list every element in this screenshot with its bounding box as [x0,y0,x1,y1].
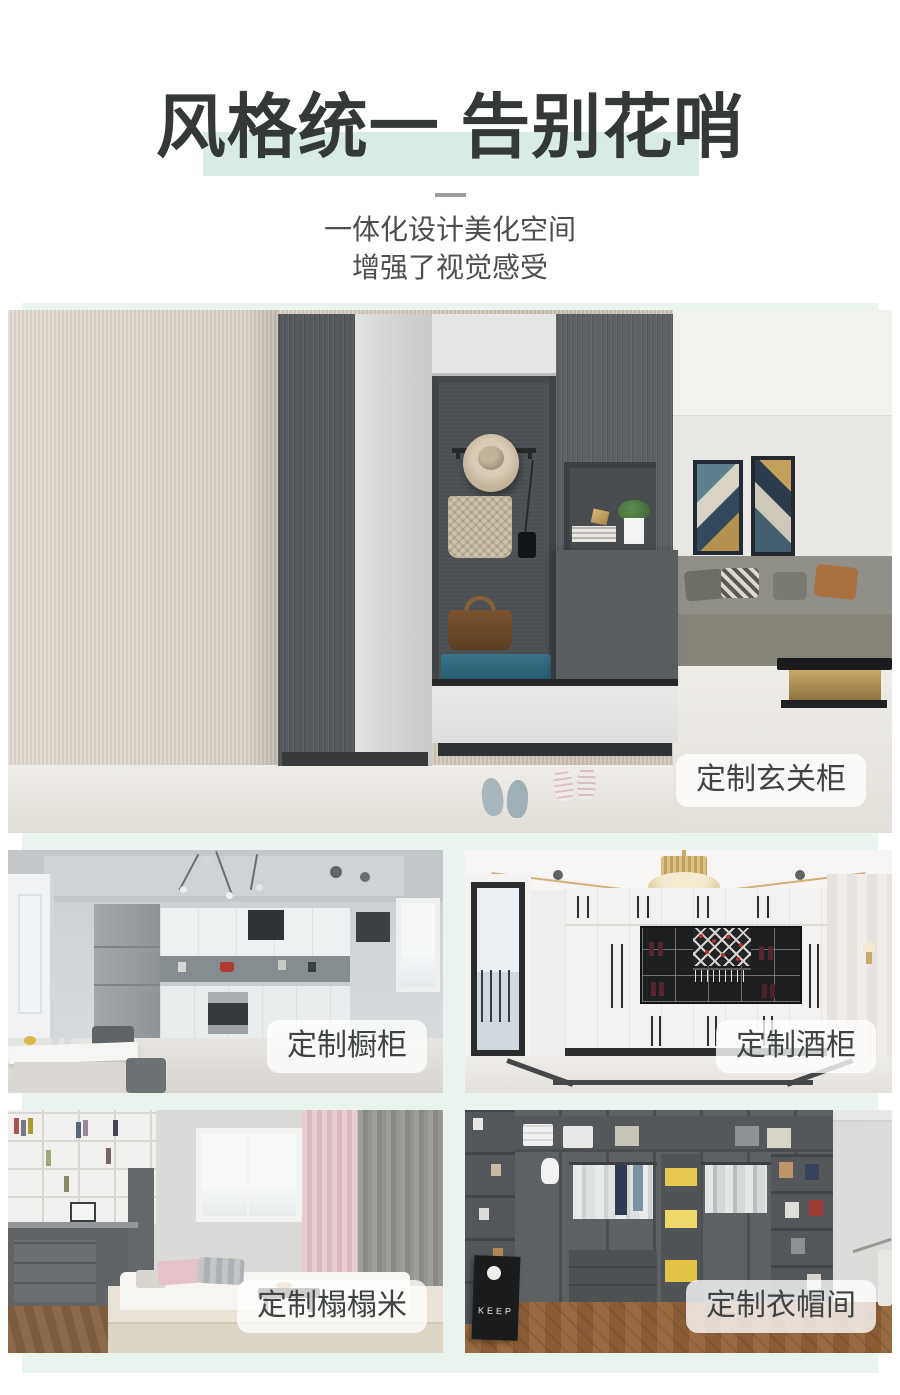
poster-text: KEEP [475,1305,517,1316]
hanging-garment [878,1250,892,1306]
wardrobe-light-panel [355,314,432,766]
floor-inlay-line [553,1080,813,1085]
window-mullion [247,1134,249,1216]
wardrobe-top-shelf [515,1116,833,1152]
window [196,1128,302,1222]
binoculars-decor [518,532,536,558]
flower-decor [24,1036,36,1045]
hanging-clothes [705,1165,767,1213]
built-in-oven [208,992,248,1034]
hero-photo-entryway-cabinet: 定制玄关柜 [8,310,892,833]
wardrobe-dark-panel [278,314,355,766]
pink-curtain [302,1110,360,1288]
bench-cushion [441,654,551,682]
header-section: 风格统一 告别花哨 一体化设计美化空间 增强了视觉感受 [0,0,900,300]
door-handles-right [809,944,811,1008]
slipper [576,766,596,801]
chandelier-bulbs [180,886,187,893]
subtitle-line-1: 一体化设计美化空间 [0,213,900,247]
poster-moon-graphic [487,1266,501,1280]
shelf-items [473,1118,483,1130]
bench-plinth [438,743,672,756]
tall-fridge-unit [94,904,160,1038]
gray-curtain [358,1110,443,1298]
tile-label-wine: 定制酒柜 [716,1020,876,1073]
folded-linens [523,1124,553,1146]
planter-pot [624,518,644,544]
cabinet-shadow [246,310,278,765]
living-room-ceiling [673,310,892,416]
books-decor [572,526,616,542]
balcony-railing [481,970,517,1022]
book-spines [14,1118,19,1134]
woven-bag-decor [448,496,512,558]
range-hood [248,910,284,940]
dining-table-base [14,1062,124,1093]
door-handles-left [611,944,613,1008]
wall-shelf [356,912,390,942]
tile-label-kitchen: 定制橱柜 [267,1020,427,1073]
backsplash [160,956,350,982]
wardrobe-drawers [569,1250,657,1302]
wine-bottle-caps [699,934,703,938]
subtitle-line-2: 增强了视觉感受 [0,251,900,285]
bench-shadow-gap [432,679,678,686]
balcony-door-glass [471,882,525,1056]
yellow-storage-box [665,1168,697,1186]
sofa-pillow [721,568,759,598]
dining-chair [126,1058,166,1093]
desk-drawers [14,1240,96,1302]
door-panel-line [18,894,42,1014]
wall-art-frame [751,456,795,556]
pink-pillow [157,1258,203,1285]
wall-art-frame [693,460,743,555]
shelf-items [779,1162,793,1178]
blue-shirt [633,1165,643,1211]
wine-bottles [649,942,654,956]
ceiling-spotlight [795,870,805,880]
counter-items [178,962,186,972]
yellow-storage-box [665,1260,697,1282]
ceiling-spotlight [360,872,370,882]
wall-sconce-base [866,952,872,964]
storage-boxes [615,1126,639,1146]
wall-sconce [863,942,875,952]
cabinet-plinth [282,752,428,766]
tile-label-cloakroom: 定制衣帽间 [686,1280,876,1333]
navy-shirt [615,1165,627,1215]
page-title: 风格统一 告别花哨 [0,92,900,162]
white-figurine [541,1158,559,1184]
title-divider [435,193,466,197]
ceiling-spotlight [330,866,342,878]
red-pot-decor [220,962,234,972]
promo-page: 风格统一 告别花哨 一体化设计美化空间 增强了视觉感受 [0,0,900,1395]
sofa-pillow [684,568,724,601]
showcase-section: 定制玄关柜 [0,300,900,1395]
coffee-table-base [789,670,881,700]
gold-ornament [591,508,610,525]
wine-bottles [759,946,764,960]
lower-cabinet-box [556,550,678,684]
yellow-storage-box [665,1210,697,1228]
sofa-pillow [773,572,807,600]
shoe-bench-drawer [432,686,678,743]
tile-photo-tatami: 定制榻榻米 [8,1110,443,1353]
sofa-pillow [813,564,858,600]
coat-hooks [456,453,460,459]
tile-photo-wine-cabinet: 定制酒柜 [465,850,892,1093]
tile-photo-kitchen: 定制橱柜 [8,850,443,1093]
coffee-table-shelf [781,700,887,708]
kitchen-window [396,898,440,992]
handbag-decor [448,610,512,650]
alcove-top-cabinet [432,314,556,376]
hero-label: 定制玄关柜 [676,754,866,807]
photo-frame [70,1202,96,1222]
ceiling-spotlight [553,870,563,880]
door-handles-top [577,896,815,918]
striped-pillow [197,1257,244,1285]
tile-label-tatami: 定制榻榻米 [237,1280,427,1333]
coffee-table [777,658,892,670]
tile-photo-cloakroom: KEEP 定制衣帽间 [465,1110,892,1353]
fridge-seams [94,946,160,948]
hanging-stemware [695,970,749,982]
sun-hat-crown [478,446,504,470]
